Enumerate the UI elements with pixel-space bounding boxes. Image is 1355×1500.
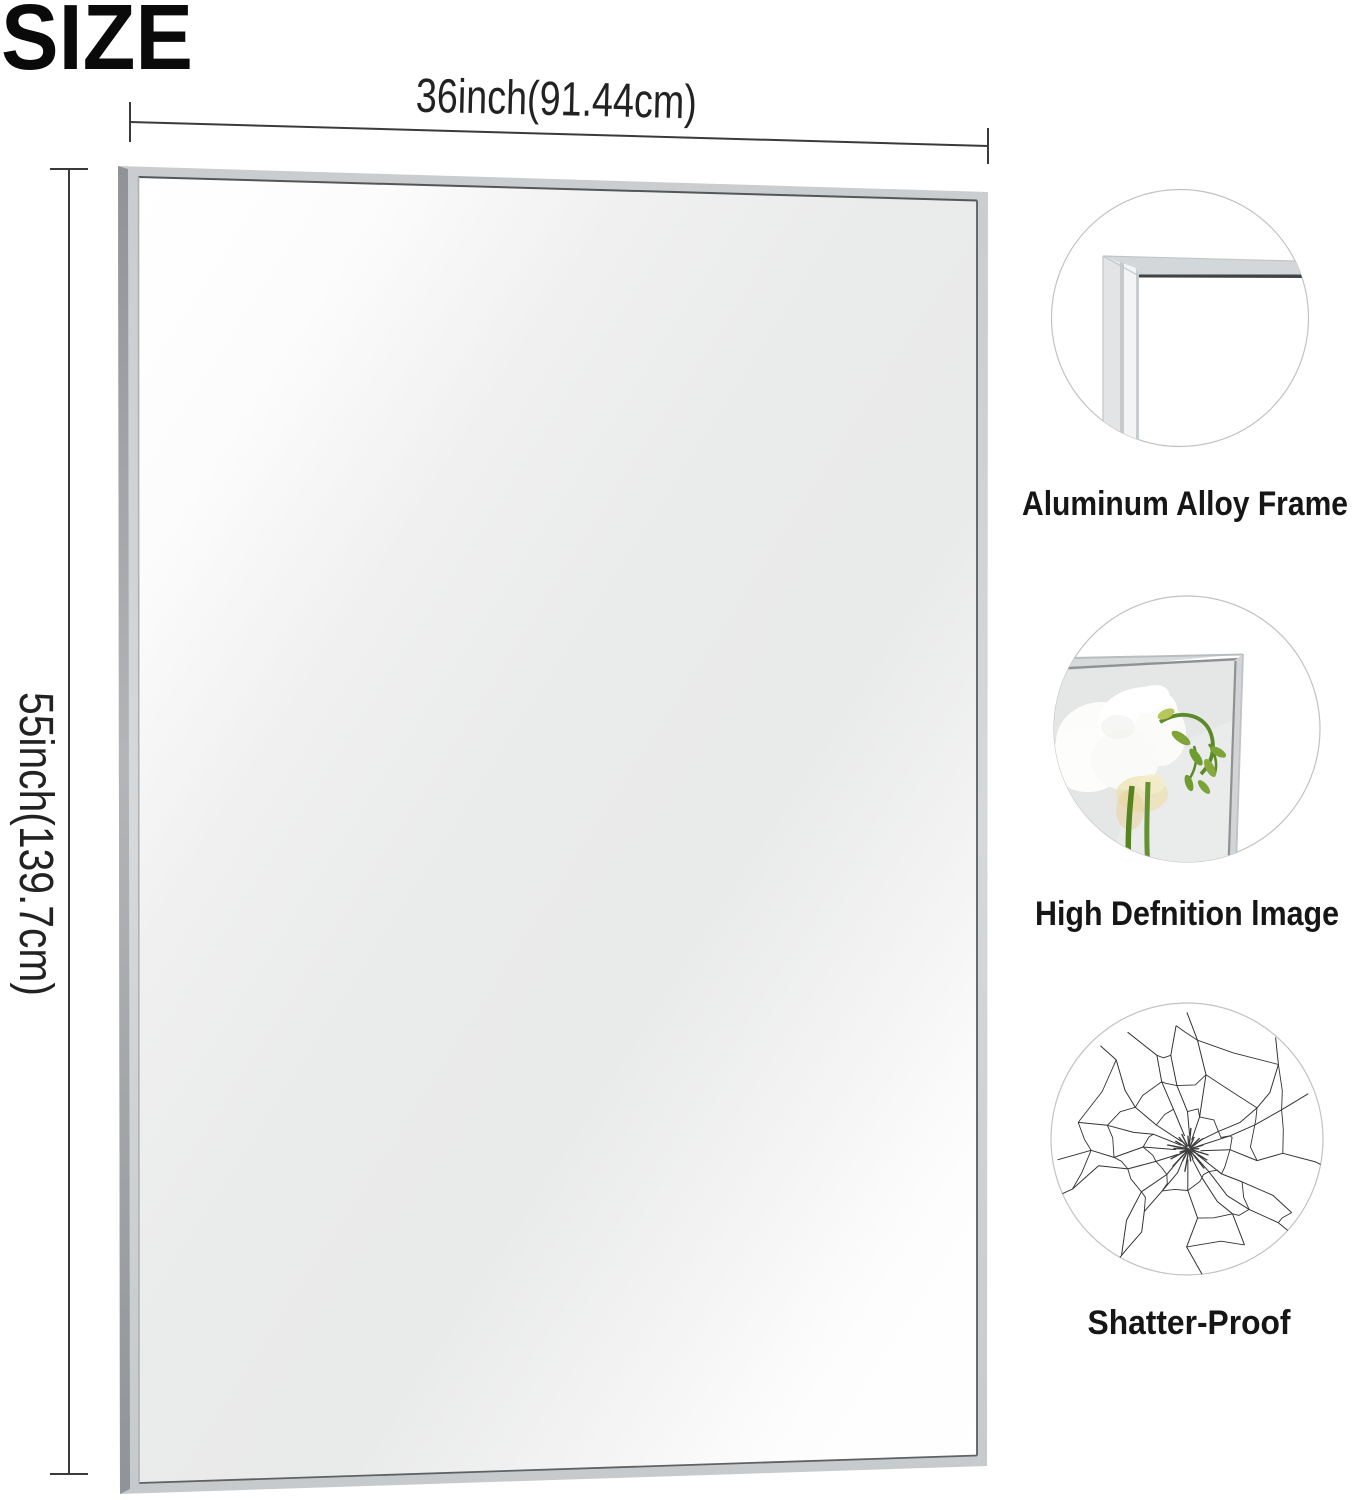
svg-text:High Defnition lmage: High Defnition lmage — [1035, 895, 1339, 933]
svg-text:Aluminum Alloy Frame: Aluminum Alloy Frame — [1022, 485, 1348, 523]
svg-text:55inch(139.7cm): 55inch(139.7cm) — [9, 692, 62, 996]
svg-text:Shatter-Proof: Shatter-Proof — [1088, 1304, 1292, 1342]
svg-text:SIZE: SIZE — [1, 0, 193, 89]
svg-text:36inch(91.44cm): 36inch(91.44cm) — [415, 70, 697, 130]
